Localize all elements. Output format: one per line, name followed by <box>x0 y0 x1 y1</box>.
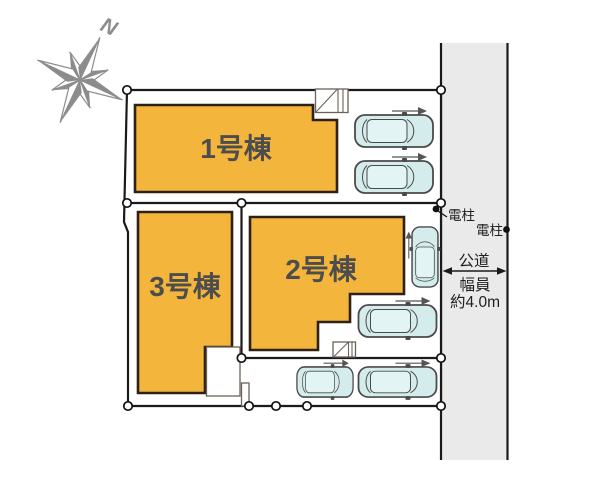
building-1-label: 1号棟 <box>200 133 273 164</box>
building-2-entry <box>333 342 356 357</box>
public-road <box>441 43 508 460</box>
road-width-caption: 幅員 <box>459 276 490 294</box>
utility-pole-2-dot <box>503 226 510 233</box>
site-plan: 1号棟 2号棟 3号棟 電柱 電柱 公道 幅員 約4.0m N <box>0 0 600 484</box>
building-2-label: 2号棟 <box>285 254 358 285</box>
utility-pole-1-label: 電柱 <box>448 208 475 223</box>
road-width-value: 約4.0m <box>450 293 500 311</box>
building-1-entry <box>316 89 349 113</box>
compass-rose-icon <box>18 18 143 143</box>
building-3-label: 3号棟 <box>149 271 222 302</box>
road-label: 公道 <box>458 252 489 270</box>
utility-pole-2-label: 電柱 <box>476 223 503 238</box>
compass-north-label: N <box>97 13 121 41</box>
